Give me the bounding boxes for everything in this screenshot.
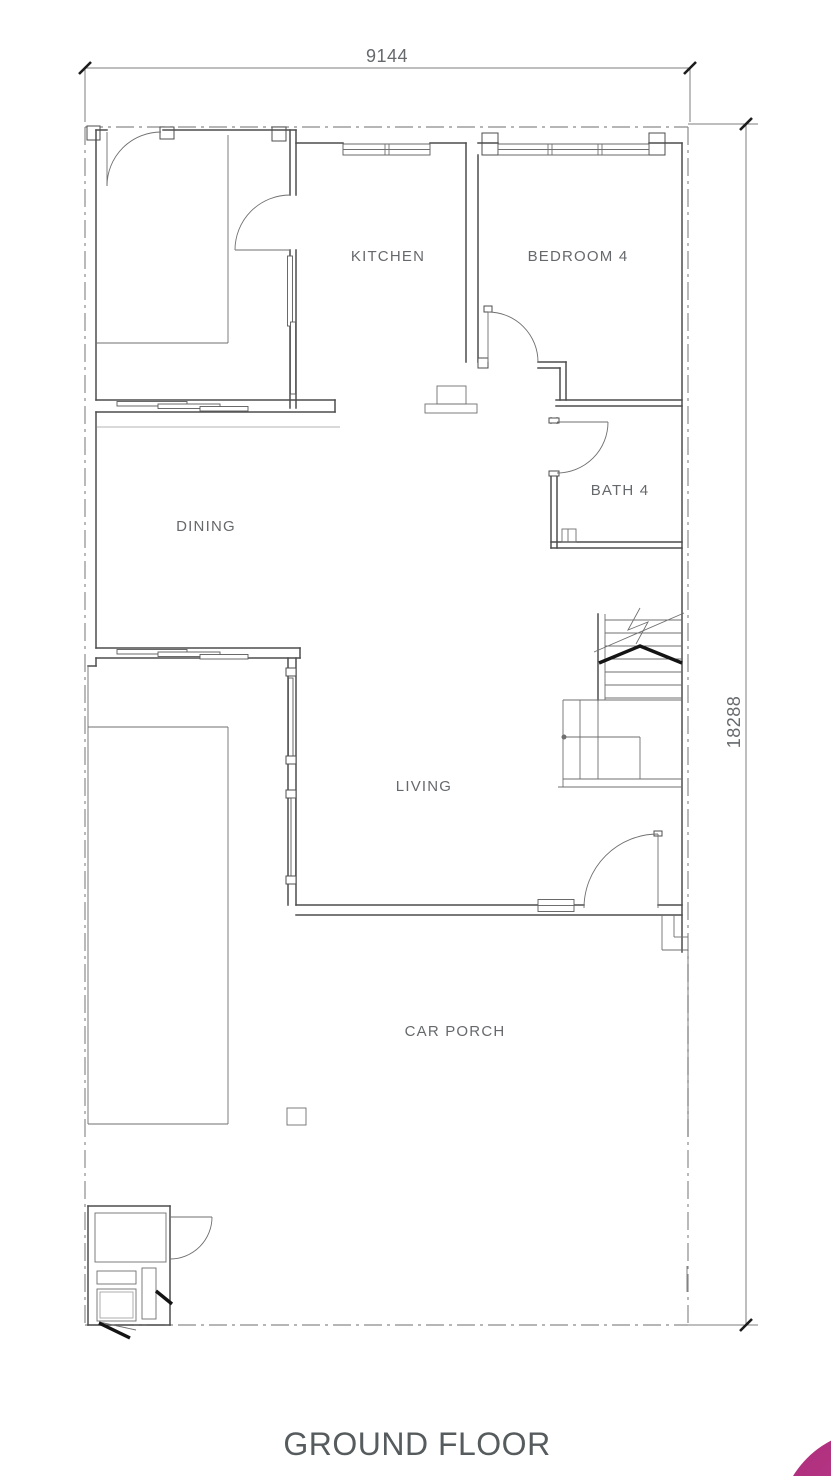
guard-house <box>88 1206 212 1338</box>
car-porch-lawn <box>88 666 228 1124</box>
dimension-width: 9144 <box>79 46 696 122</box>
porch-column <box>287 1108 306 1125</box>
dimension-width-label: 9144 <box>366 46 408 66</box>
room-label-kitchen: KITCHEN <box>351 248 425 265</box>
room-label-bath4: BATH 4 <box>591 482 650 499</box>
room-label-dining: DINING <box>176 518 236 535</box>
floor-plan-page: 9144 18288 <box>0 0 831 1476</box>
floor-plan-drawing: 9144 18288 <box>0 0 831 1476</box>
room-labels: KITCHEN BEDROOM 4 BATH 4 DINING LIVING C… <box>176 248 649 1040</box>
room-label-bedroom4: BEDROOM 4 <box>528 248 629 265</box>
room-label-car-porch: CAR PORCH <box>405 1023 506 1040</box>
dimension-depth: 18288 <box>688 118 758 1331</box>
dimension-depth-label: 18288 <box>724 696 744 749</box>
room-label-living: LIVING <box>396 778 452 795</box>
staircase <box>558 608 684 787</box>
floor-title: GROUND FLOOR <box>283 1426 550 1462</box>
